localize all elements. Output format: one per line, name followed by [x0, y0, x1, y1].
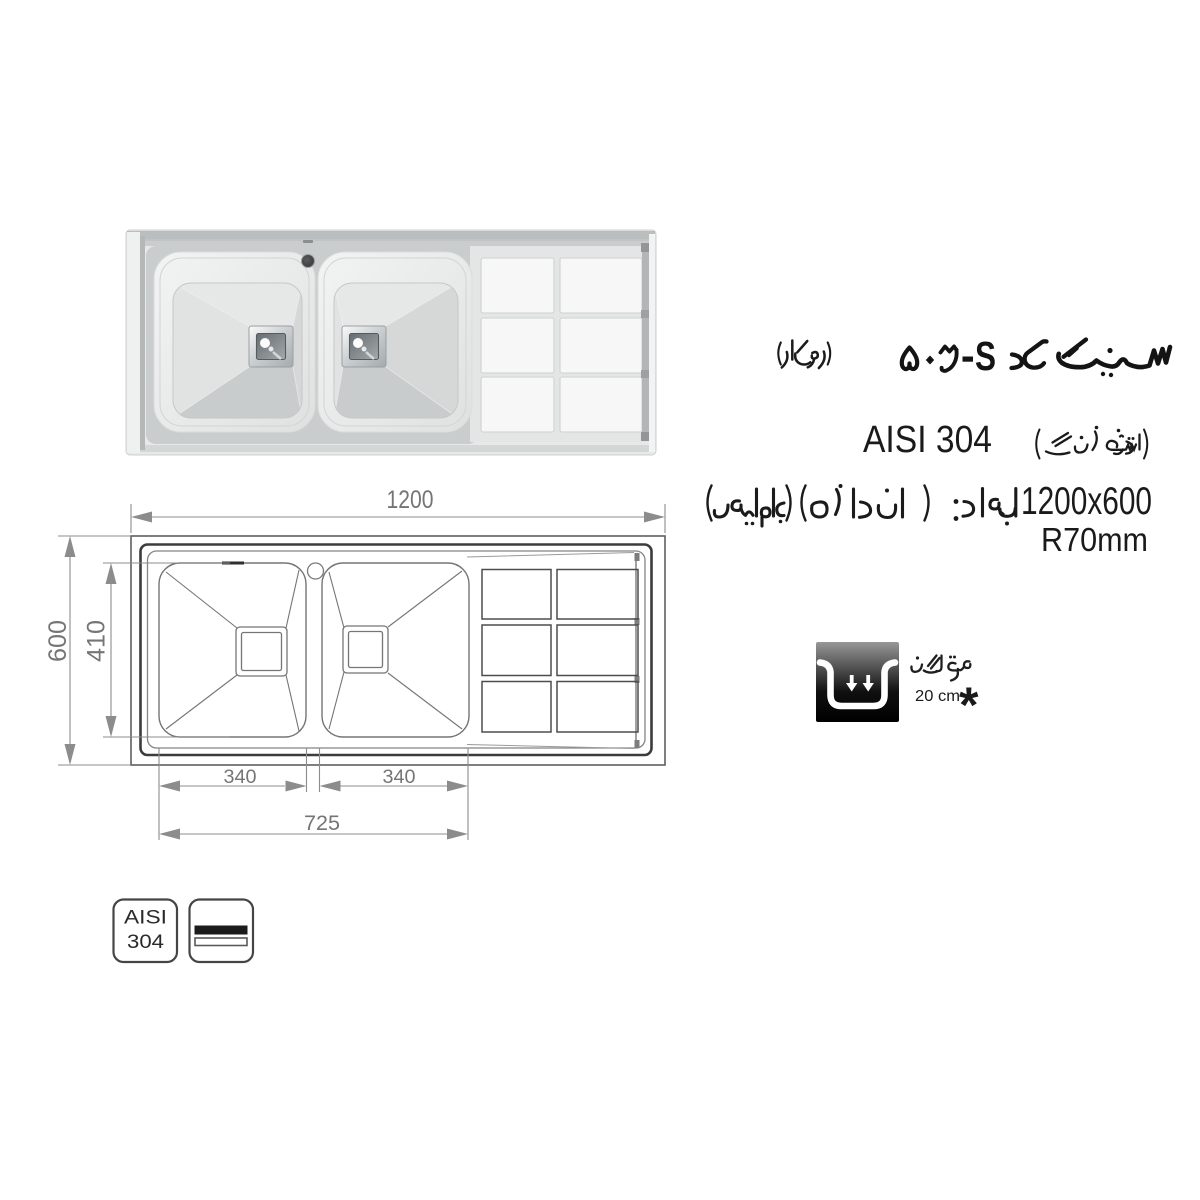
svg-text:1200x600: 1200x600	[1021, 480, 1152, 523]
svg-text:S: S	[975, 333, 996, 379]
svg-text:AISI: AISI	[124, 907, 167, 929]
svg-text:1200: 1200	[387, 486, 434, 514]
svg-text:20 cm: 20 cm	[915, 688, 960, 705]
svg-text:AISI 304: AISI 304	[863, 419, 992, 461]
svg-text:725: 725	[304, 812, 340, 835]
svg-text:340: 340	[224, 767, 257, 788]
svg-text:600: 600	[44, 620, 72, 662]
svg-text:304: 304	[127, 931, 164, 953]
svg-text:410: 410	[83, 620, 111, 662]
svg-text:R70mm: R70mm	[1041, 521, 1148, 558]
svg-text:340: 340	[383, 767, 416, 788]
svg-text:*: *	[959, 677, 979, 733]
